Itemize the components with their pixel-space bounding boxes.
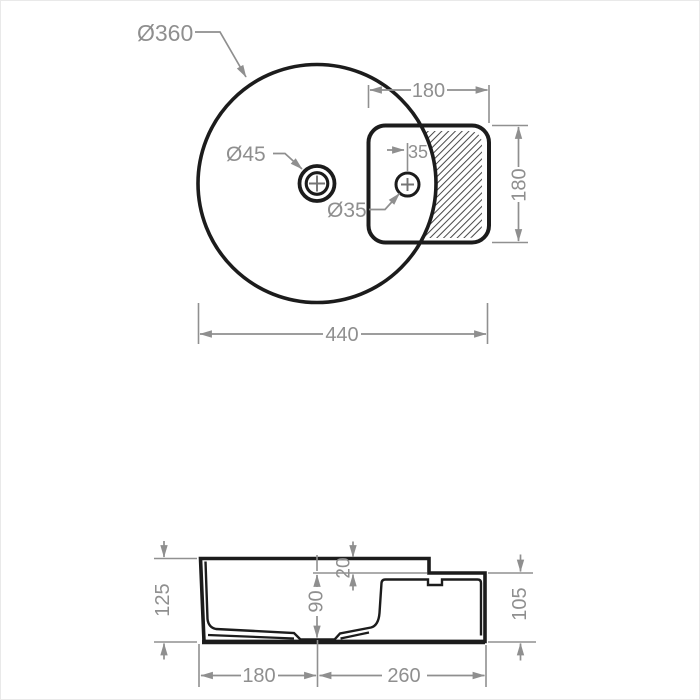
label-basin-diameter: Ø360 <box>137 20 193 46</box>
dim-rim-step: 20 <box>334 542 355 591</box>
label-tap-offset: 35 <box>408 142 428 162</box>
dim-tap-offset: 35 <box>387 142 428 171</box>
label-drain-diameter: Ø45 <box>226 143 266 166</box>
leader-tap-hole-diameter <box>369 194 400 210</box>
leader-drain-diameter <box>273 154 302 170</box>
label-bottom-right-width: 260 <box>387 665 420 687</box>
dim-overall-width: 440 <box>199 303 488 346</box>
label-tap-hole-diameter: Ø35 <box>327 199 367 222</box>
top-view: Ø360 Ø45 Ø35 35 180 180 <box>137 20 531 346</box>
dim-bowl-depth: 90 <box>306 555 328 638</box>
dim-height-right: 105 <box>488 555 536 661</box>
dim-deck-depth: 180 <box>492 126 531 243</box>
label-deck-depth: 180 <box>509 168 531 201</box>
dim-bottom-widths: 180 260 <box>199 640 486 687</box>
label-deck-width: 180 <box>412 80 445 102</box>
label-bottom-left-width: 180 <box>242 665 275 687</box>
label-height-left: 125 <box>152 583 174 616</box>
label-overall-width: 440 <box>325 324 358 346</box>
drain-hole <box>300 166 335 201</box>
drawing-sheet: Ø360 Ø45 Ø35 35 180 180 <box>0 0 700 700</box>
leader-basin-diameter <box>195 32 246 77</box>
label-rim-step: 20 <box>334 557 355 578</box>
tap-hole <box>396 173 419 196</box>
dim-height-left: 125 <box>152 541 197 660</box>
label-height-right: 105 <box>509 587 531 620</box>
side-view: 125 20 90 105 <box>152 541 536 687</box>
label-bowl-depth: 90 <box>306 590 328 612</box>
washbasin-drawing: Ø360 Ø45 Ø35 35 180 180 <box>1 1 700 700</box>
